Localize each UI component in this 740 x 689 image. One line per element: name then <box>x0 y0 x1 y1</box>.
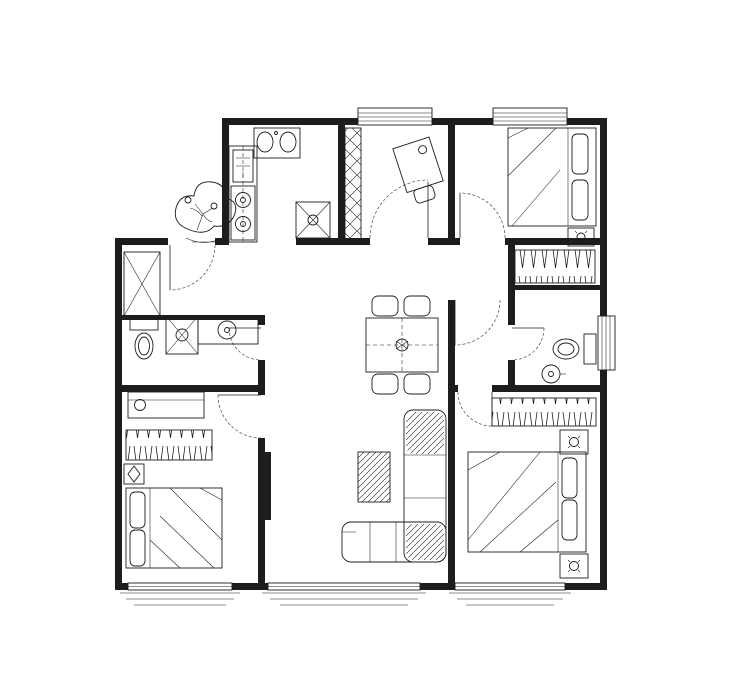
window-top-study <box>358 108 432 125</box>
coffee-table <box>358 452 390 502</box>
windows <box>120 108 615 605</box>
refrigerator <box>296 202 330 238</box>
basin-right <box>542 365 566 383</box>
window-bottom-bedroom3 <box>120 583 240 605</box>
bedroom3-bed <box>126 488 222 568</box>
floor-plan-svg <box>0 0 740 689</box>
master-nightstand-bottom <box>560 554 588 578</box>
kitchen-stove <box>231 146 255 242</box>
closet-hall <box>515 250 595 283</box>
window-bottom-master <box>449 583 571 605</box>
basin-counter-left <box>198 316 258 344</box>
furniture <box>124 128 596 578</box>
bedroom3-plant-stand <box>124 464 144 484</box>
door-corridor <box>455 300 500 345</box>
kitchen-sink <box>254 128 300 158</box>
door-bedroom2 <box>460 193 505 238</box>
bedroom3-dresser <box>128 392 204 418</box>
master-closet <box>492 398 596 426</box>
window-right-bathroom <box>598 316 615 370</box>
tv-panel <box>265 452 271 520</box>
study-wardrobe <box>345 128 361 240</box>
door-master <box>458 392 492 426</box>
door-bedroom3 <box>218 395 261 438</box>
door-entry <box>170 245 215 290</box>
dining-table <box>366 296 438 394</box>
window-top-bedroom2 <box>493 108 567 125</box>
door-bathroom-right <box>512 328 544 360</box>
bedroom2-bed <box>508 128 596 226</box>
toilet-left <box>130 318 158 359</box>
toilet-right <box>553 334 596 364</box>
master-nightstand-top <box>560 430 588 454</box>
study-desk <box>393 137 448 206</box>
window-bottom-living <box>262 583 426 605</box>
bedroom3-closet <box>126 430 212 460</box>
washing-machine <box>166 316 198 354</box>
shoe-cabinet <box>124 252 160 316</box>
master-bed <box>468 452 586 552</box>
